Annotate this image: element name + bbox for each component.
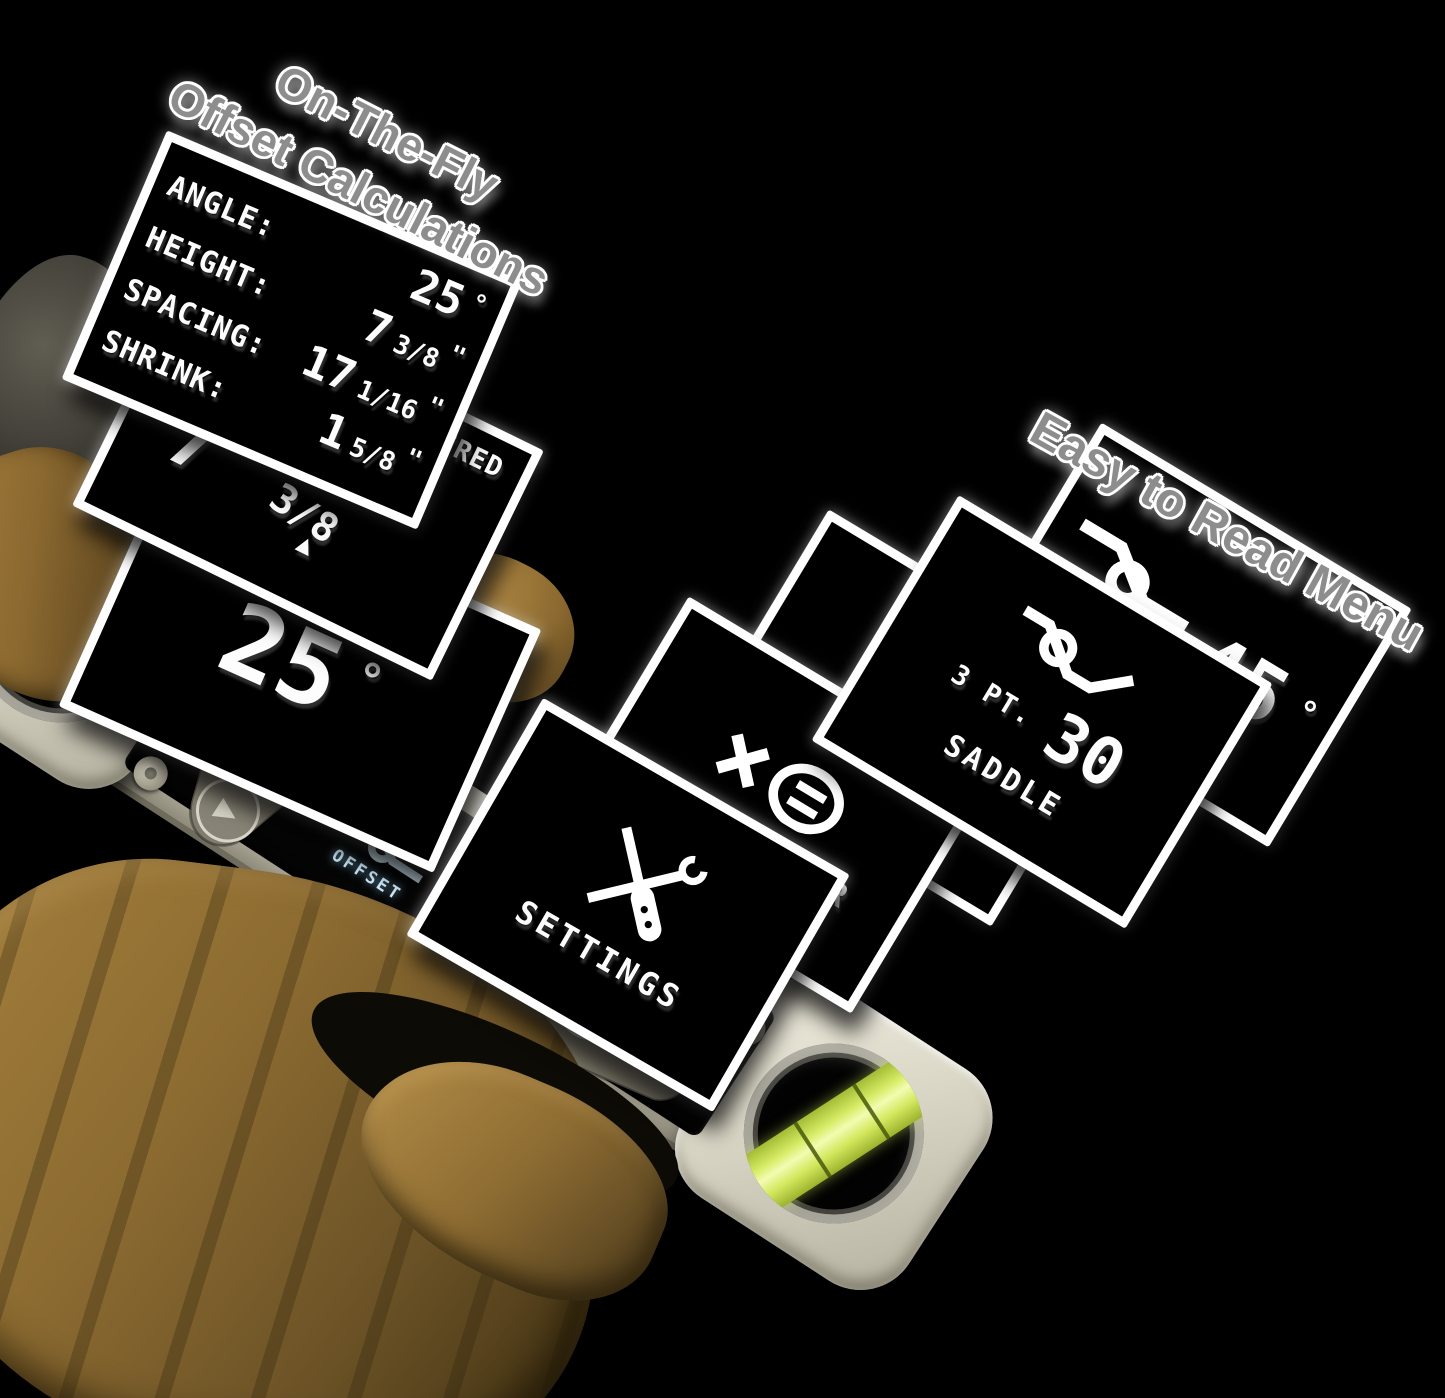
- vial-mark: [794, 1122, 832, 1178]
- row-unit: ": [444, 340, 470, 374]
- right-bubble-vial: [709, 1043, 953, 1233]
- row-fraction: 5/8: [345, 432, 400, 478]
- degree-symbol: °: [345, 650, 392, 711]
- vial-mark: [852, 1084, 890, 1140]
- row-fraction: 3/8: [389, 329, 444, 375]
- degree-symbol: °: [1287, 691, 1325, 736]
- row-unit: °: [466, 288, 492, 322]
- product-marketing-image: ▼ ▶ OFFSET 30 °: [0, 0, 1445, 1398]
- menu-item-label-top: 3 PT.: [945, 659, 1039, 733]
- right-arrow-icon: ▶: [210, 791, 246, 830]
- row-unit: ": [400, 443, 426, 477]
- row-unit: ": [422, 391, 448, 425]
